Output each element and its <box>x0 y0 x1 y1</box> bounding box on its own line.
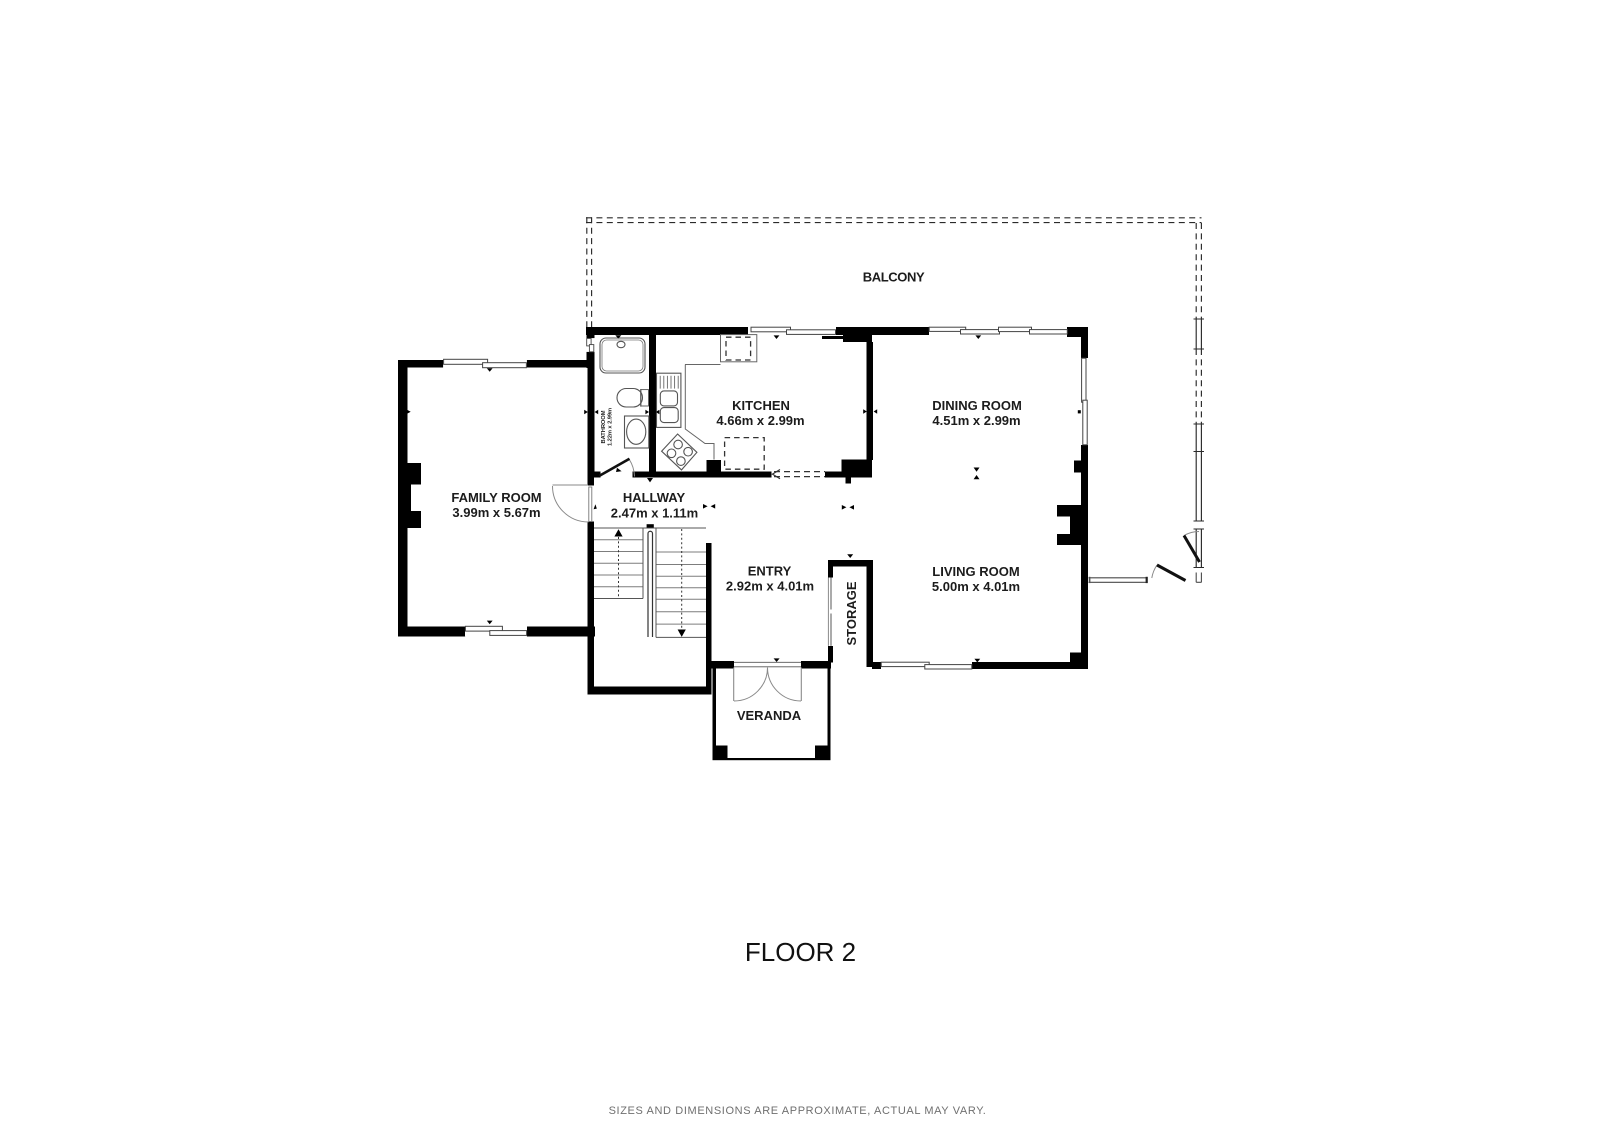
svg-text:VERANDA: VERANDA <box>737 708 802 723</box>
svg-text:2.47m x 1.11m: 2.47m x 1.11m <box>611 506 698 521</box>
svg-text:LIVING ROOM: LIVING ROOM <box>932 564 1019 579</box>
svg-text:KITCHEN: KITCHEN <box>732 398 790 413</box>
svg-text:SIZES AND DIMENSIONS ARE APPRO: SIZES AND DIMENSIONS ARE APPROXIMATE, AC… <box>609 1105 987 1117</box>
svg-text:BALCONY: BALCONY <box>863 270 925 285</box>
svg-text:4.51m x 2.99m: 4.51m x 2.99m <box>932 413 1020 428</box>
svg-text:FAMILY ROOM: FAMILY ROOM <box>451 490 541 505</box>
svg-text:HALLWAY: HALLWAY <box>623 490 686 505</box>
svg-text:3.99m x 5.67m: 3.99m x 5.67m <box>452 505 540 520</box>
svg-text:STORAGE: STORAGE <box>844 581 859 645</box>
svg-text:ENTRY: ENTRY <box>748 564 792 579</box>
svg-text:DINING ROOM: DINING ROOM <box>932 398 1022 413</box>
svg-text:5.00m x 4.01m: 5.00m x 4.01m <box>932 579 1020 594</box>
svg-text:BATHROOM: BATHROOM <box>601 410 607 443</box>
svg-text:2.92m x 4.01m: 2.92m x 4.01m <box>726 579 814 594</box>
svg-text:1.22m x 2.99m: 1.22m x 2.99m <box>608 408 614 446</box>
svg-text:FLOOR 2: FLOOR 2 <box>745 937 856 967</box>
svg-text:4.66m x 2.99m: 4.66m x 2.99m <box>716 413 804 428</box>
